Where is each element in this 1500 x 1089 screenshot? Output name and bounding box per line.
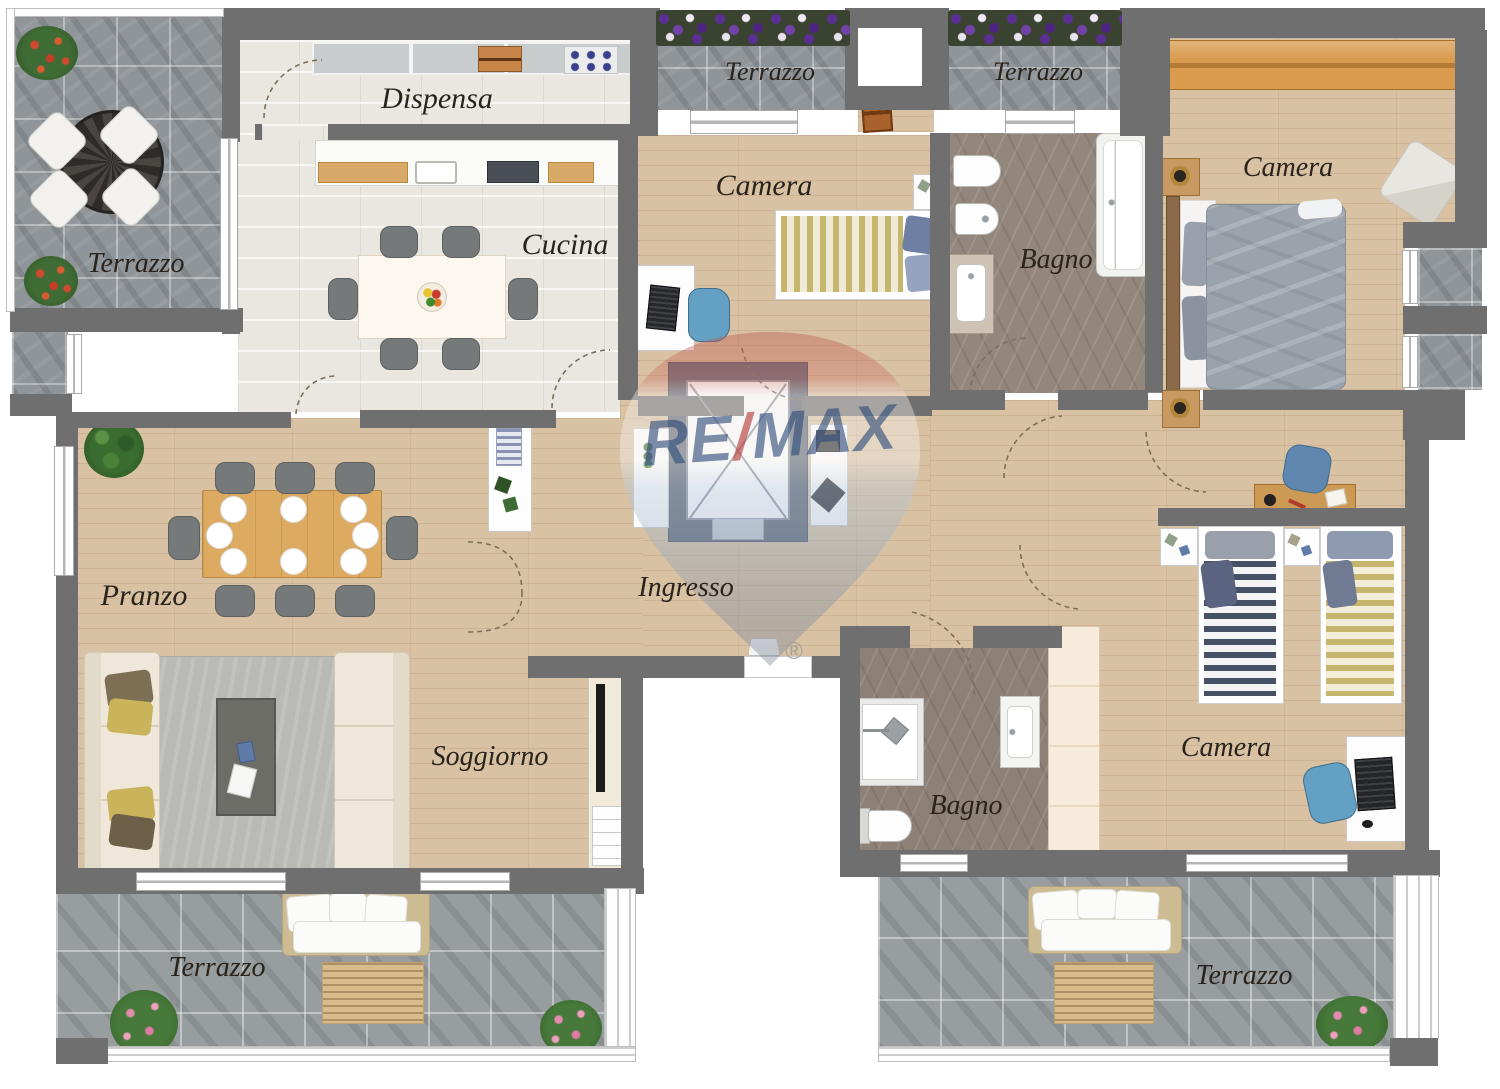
mattress-stripes (781, 216, 903, 292)
kitchen-chair (380, 338, 418, 370)
room-label-dispensa: Dispensa (381, 82, 493, 116)
wardrobe (1163, 40, 1458, 90)
potted-plant (24, 256, 78, 306)
bathtub-basin (1103, 140, 1143, 270)
radiator (496, 428, 522, 466)
dining-chair (168, 516, 200, 560)
toilet (953, 155, 1001, 187)
single-bed-gold (1320, 526, 1402, 704)
single-bed-navy (1198, 526, 1284, 704)
plate (340, 496, 367, 523)
wall (10, 308, 243, 332)
kitchen-chair (442, 338, 480, 370)
floor-plan: RE/MAX Terrazzo Dispensa Cucina Terrazzo… (0, 0, 1500, 1089)
decor (1287, 533, 1300, 546)
balcony-right-lower-floor (1418, 334, 1482, 390)
outdoor-sofa (282, 890, 430, 956)
sink-basin (1007, 706, 1033, 758)
window (54, 446, 74, 576)
throw-pillow (108, 813, 156, 851)
wall (56, 412, 291, 428)
wall (1403, 222, 1487, 248)
plate (280, 496, 307, 523)
sliding-door (420, 872, 510, 891)
pillow (1205, 531, 1275, 559)
flower-planter (948, 10, 1122, 46)
window (1402, 250, 1418, 304)
terrace-railing (604, 888, 636, 1050)
single-bed-gold (775, 210, 945, 300)
laptop (816, 430, 840, 452)
sliding-door (136, 872, 286, 891)
kitchen-chair (328, 278, 358, 320)
plate (340, 548, 367, 575)
kitchen-sink (415, 161, 457, 184)
toilet-bowl (868, 810, 912, 842)
pillow (1200, 559, 1238, 609)
sliding-door (690, 110, 798, 134)
room-label-terrazzo-top-right: Terrazzo (993, 57, 1083, 87)
potted-plant (16, 26, 78, 80)
shower-tray (862, 704, 918, 780)
door-opening (262, 124, 328, 140)
railing-post (1390, 1038, 1438, 1066)
room-label-terrazzo-top-center: Terrazzo (725, 57, 815, 87)
window (66, 334, 82, 394)
tv-cabinet (592, 806, 622, 866)
bed-headboard (1166, 196, 1180, 392)
bidet (955, 203, 999, 235)
room-label-ingresso: Ingresso (638, 572, 733, 604)
wall (621, 656, 643, 872)
window (1402, 336, 1418, 388)
terrace-railing (1393, 875, 1439, 1039)
flowering-plant (1316, 996, 1388, 1052)
terrace-railing (6, 8, 224, 17)
wall (1403, 390, 1465, 440)
lamp (1170, 398, 1190, 418)
shower-arm (863, 729, 889, 732)
wall (1403, 306, 1487, 334)
wall (1058, 390, 1148, 410)
wall (802, 396, 932, 416)
kitchen-chair (442, 226, 480, 258)
wall (360, 410, 556, 428)
cushion (1041, 919, 1171, 951)
room-label-bagno-top: Bagno (1019, 244, 1092, 276)
mouse (1362, 820, 1373, 828)
dining-chair (335, 585, 375, 617)
houseplant (84, 420, 144, 478)
plate (206, 522, 233, 549)
railing-post (56, 1038, 108, 1064)
room-label-soggiorno: Soggiorno (432, 741, 549, 773)
cushion (1077, 889, 1117, 919)
plate (352, 522, 379, 549)
wall (1145, 8, 1485, 38)
dining-chair (335, 462, 375, 494)
elevator-door (712, 518, 764, 540)
decor (1301, 545, 1313, 557)
wall (1158, 508, 1408, 526)
window (220, 138, 238, 310)
room-label-camera-bottom-right: Camera (1181, 732, 1271, 764)
decor-plant-small (642, 442, 654, 468)
laptop (646, 285, 680, 332)
room-label-bagno-bottom: Bagno (929, 790, 1002, 822)
sliding-door (1005, 110, 1075, 134)
coffee-table-book (236, 741, 255, 763)
terrace-top-left-floor-ext (12, 330, 68, 394)
cushion (329, 893, 367, 923)
terrace-railing (878, 1046, 1390, 1062)
plate (220, 548, 247, 575)
wall (630, 8, 658, 136)
nightstand (1284, 528, 1320, 566)
plate (220, 496, 247, 523)
door-mat (748, 638, 780, 656)
room-label-terrazzo-bottom-right: Terrazzo (1195, 960, 1292, 992)
kids-closet (1048, 626, 1100, 868)
lamp (1170, 166, 1190, 186)
wall (1405, 437, 1429, 877)
window (900, 854, 968, 872)
kitchen-oven (487, 161, 539, 183)
plate (280, 548, 307, 575)
laptop (1354, 757, 1396, 812)
room-label-camera-top-right: Camera (1243, 152, 1333, 184)
pillow (1322, 559, 1358, 609)
wall (930, 133, 950, 392)
terrace-railing (106, 1046, 636, 1062)
tv-screen (596, 684, 605, 792)
kitchen-counter-wood (548, 162, 594, 183)
wall (618, 133, 638, 400)
hob-six-burners (564, 46, 618, 74)
kitchen-counter-wood (318, 162, 408, 183)
dining-chair (275, 462, 315, 494)
kitchen-chair (508, 278, 538, 320)
wall (1203, 390, 1405, 410)
wall (973, 626, 1062, 648)
decor (917, 179, 931, 193)
cushion (293, 921, 421, 953)
room-label-pranzo: Pranzo (101, 579, 188, 613)
wall (222, 8, 660, 40)
wall (638, 396, 744, 416)
sink-basin (956, 264, 986, 322)
shower (856, 698, 924, 786)
outdoor-table (1054, 962, 1154, 1024)
decor (1179, 545, 1191, 557)
outdoor-table (322, 962, 424, 1024)
desk-item-round (1264, 494, 1276, 506)
desk-chair (688, 288, 730, 342)
terrace-railing (6, 8, 15, 312)
room-label-cucina: Cucina (522, 228, 609, 262)
outdoor-sofa (1028, 886, 1182, 954)
cutting-board (478, 46, 522, 72)
sink (1000, 696, 1040, 768)
dining-chair (215, 462, 255, 494)
wall (1145, 30, 1163, 392)
balcony-right-upper-floor (1418, 248, 1482, 306)
wall (930, 390, 1005, 410)
nightstand (1160, 528, 1198, 566)
dining-chair (215, 585, 255, 617)
pillow (1327, 531, 1393, 559)
sofa-right (334, 652, 410, 880)
room-label-terrazzo-top-left: Terrazzo (87, 248, 184, 280)
fruit-bowl (417, 282, 447, 312)
sliding-door (1186, 854, 1348, 872)
duvet (1206, 204, 1346, 390)
decor (1164, 533, 1178, 547)
desk-chair (1280, 442, 1333, 495)
bathtub (1096, 133, 1150, 277)
wall (840, 626, 860, 858)
registered-trademark-symbol: ® (785, 638, 803, 666)
wall (1455, 30, 1487, 226)
wall (222, 40, 240, 142)
flower-planter (656, 10, 850, 46)
room-label-terrazzo-bottom-left: Terrazzo (168, 952, 265, 984)
dining-chair (275, 585, 315, 617)
facade-notch (858, 28, 922, 86)
throw-pillow (106, 698, 153, 736)
kitchen-chair (380, 226, 418, 258)
room-label-camera-top-center: Camera (716, 169, 813, 203)
dining-chair (386, 516, 418, 560)
